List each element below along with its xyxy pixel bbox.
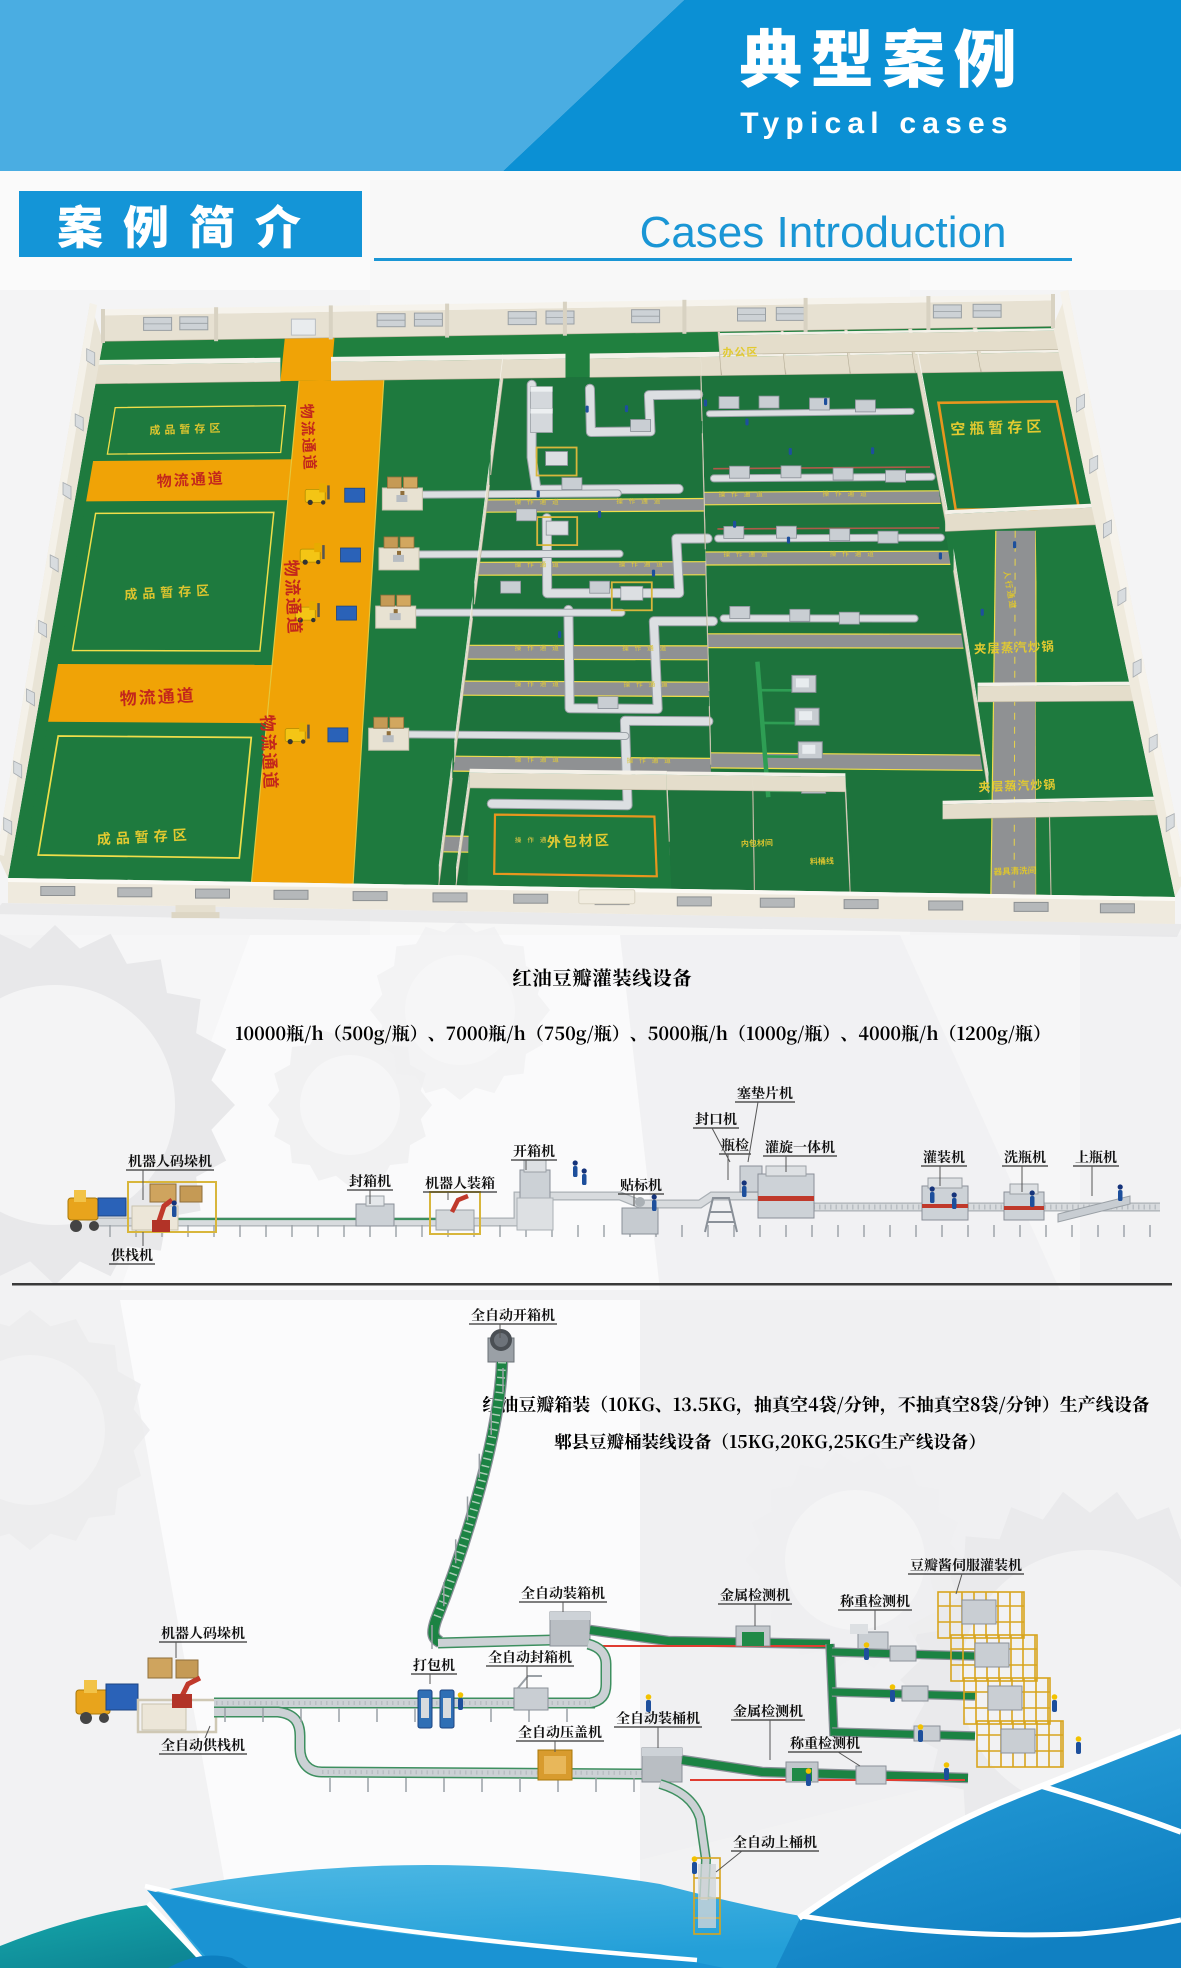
svg-text:Typical cases: Typical cases [740,107,1014,140]
svg-text:Cases Introduction: Cases Introduction [640,208,1007,257]
